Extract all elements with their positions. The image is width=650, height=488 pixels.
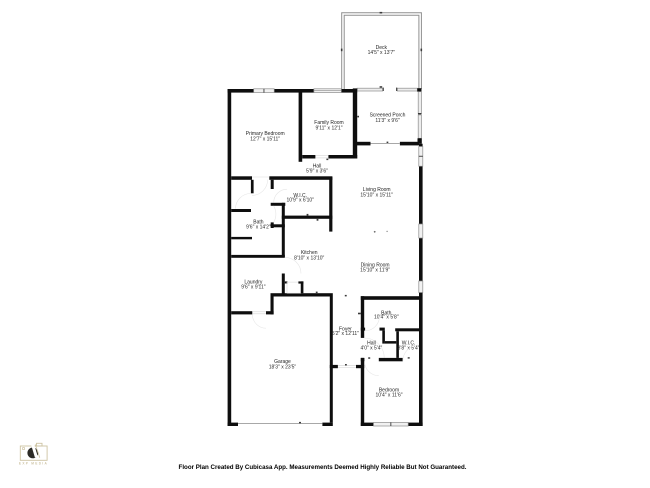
svg-text:9'11" x 12'1": 9'11" x 12'1": [315, 125, 342, 131]
svg-text:5'9" x 3'6": 5'9" x 3'6": [306, 168, 328, 174]
svg-text:9'6" x 9'11": 9'6" x 9'11": [241, 284, 265, 290]
svg-text:Floor Plan Created By Cubicasa: Floor Plan Created By Cubicasa App. Meas…: [179, 464, 467, 471]
svg-text:9'6" x 14'2": 9'6" x 14'2": [246, 224, 271, 230]
svg-text:5'2" x 12'11": 5'2" x 12'11": [332, 331, 359, 337]
svg-text:8'10" x 13'10": 8'10" x 13'10": [294, 255, 324, 261]
svg-text:10'4" x 5'8": 10'4" x 5'8": [374, 315, 399, 321]
svg-text:10'9" x 6'10": 10'9" x 6'10": [286, 198, 314, 204]
svg-text:12'7" x 15'11": 12'7" x 15'11": [250, 136, 280, 142]
svg-text:14'5" x 13'7": 14'5" x 13'7": [368, 50, 396, 56]
svg-text:4'0" x 5'4": 4'0" x 5'4": [360, 346, 382, 352]
svg-text:15'10" x 11'9": 15'10" x 11'9": [360, 268, 390, 274]
svg-text:11'3" x 9'6": 11'3" x 9'6": [375, 118, 399, 124]
svg-text:EXP MEDIA: EXP MEDIA: [19, 462, 48, 466]
svg-text:10'4" x 11'6": 10'4" x 11'6": [375, 393, 402, 399]
svg-text:15'10" x 15'11": 15'10" x 15'11": [360, 192, 393, 198]
svg-text:18'3" x 23'5": 18'3" x 23'5": [269, 364, 297, 370]
